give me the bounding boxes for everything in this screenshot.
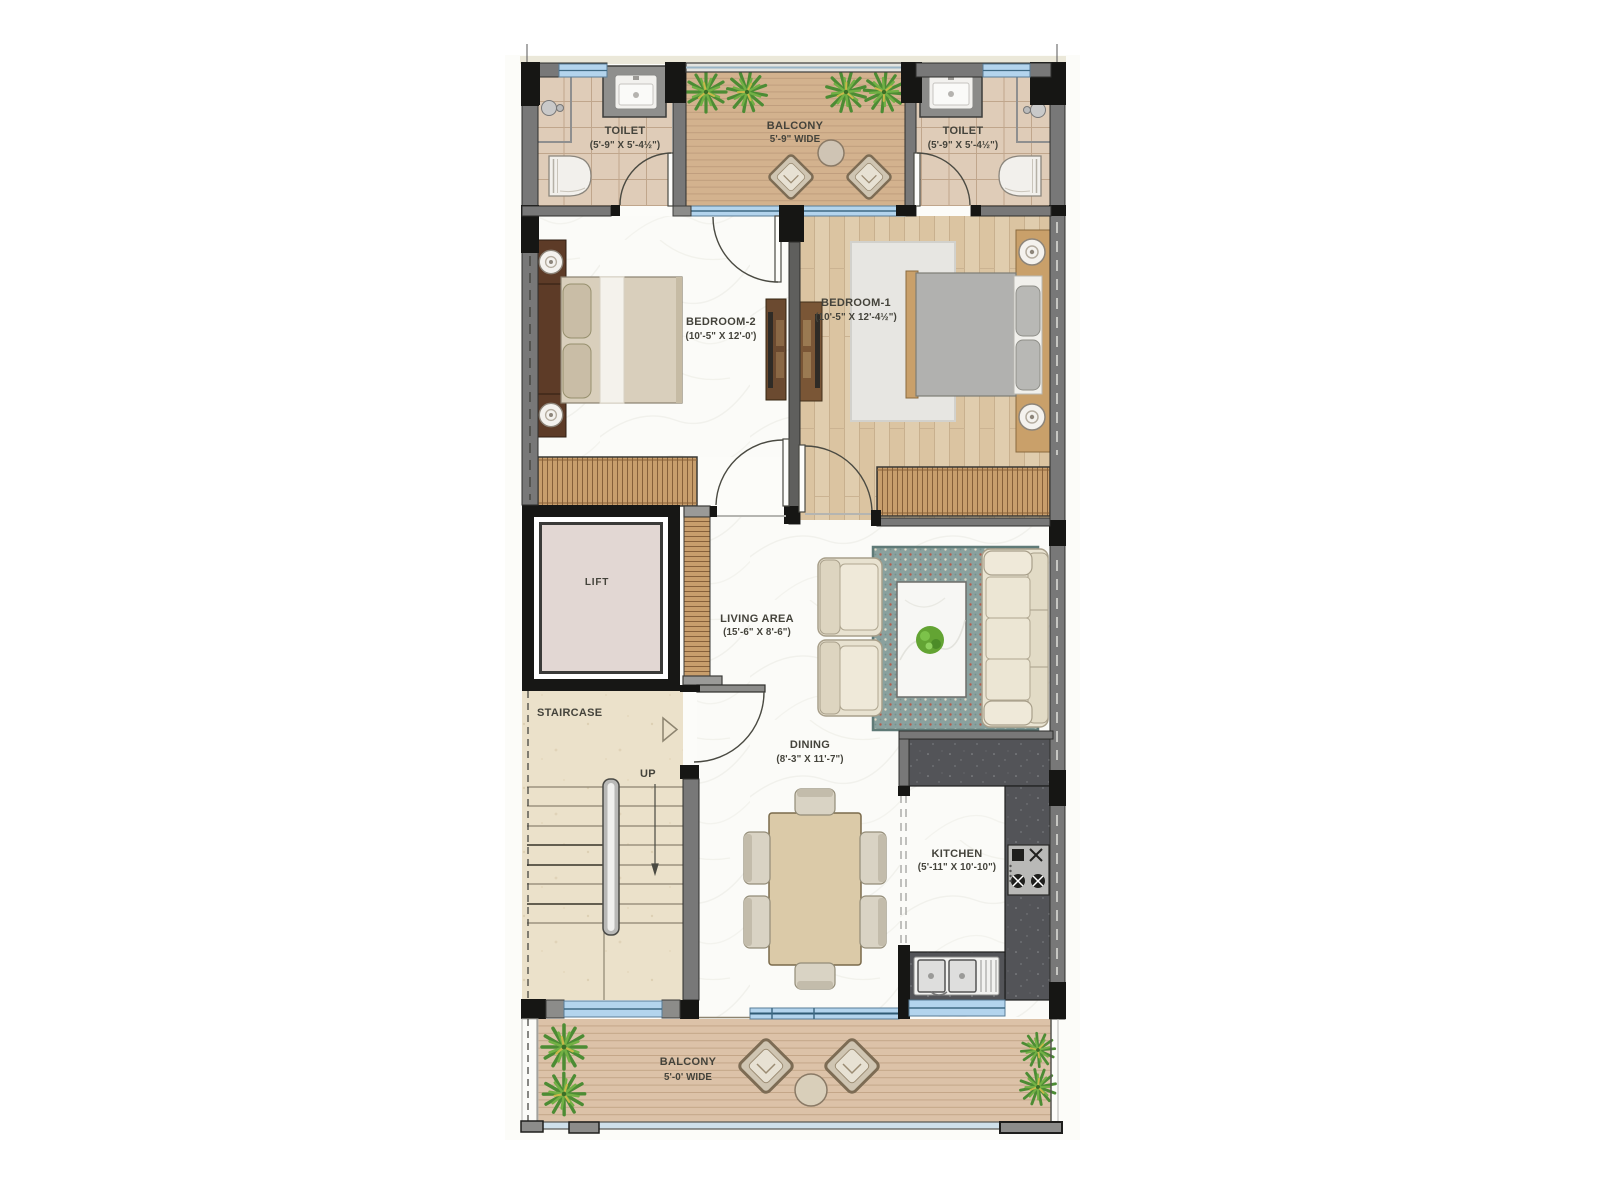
svg-text:BEDROOM-1: BEDROOM-1: [821, 297, 891, 309]
svg-text:(5'-9" X 5'-4½"): (5'-9" X 5'-4½"): [928, 140, 999, 151]
svg-text:(5'-9" X 5'-4½"): (5'-9" X 5'-4½"): [590, 140, 661, 151]
svg-text:KITCHEN: KITCHEN: [932, 848, 983, 860]
svg-text:(15'-6" X 8'-6"): (15'-6" X 8'-6"): [723, 627, 791, 638]
svg-text:BEDROOM-2: BEDROOM-2: [686, 316, 756, 328]
svg-text:5'-0' WIDE: 5'-0' WIDE: [664, 1072, 712, 1083]
svg-text:5'-9" WIDE: 5'-9" WIDE: [770, 134, 821, 145]
svg-text:TOILET: TOILET: [605, 125, 646, 137]
svg-text:LIFT: LIFT: [585, 577, 609, 588]
svg-text:BALCONY: BALCONY: [767, 120, 824, 132]
svg-text:(5'-11" X 10'-10"): (5'-11" X 10'-10"): [918, 862, 996, 873]
svg-text:(10'-5" X 12'-0'): (10'-5" X 12'-0'): [685, 331, 756, 342]
svg-text:BALCONY: BALCONY: [660, 1056, 717, 1068]
svg-text:TOILET: TOILET: [943, 125, 984, 137]
svg-text:LIVING AREA: LIVING AREA: [720, 613, 794, 625]
svg-text:DINING: DINING: [790, 739, 830, 751]
svg-text:STAIRCASE: STAIRCASE: [537, 707, 602, 719]
svg-text:(8'-3" X 11'-7"): (8'-3" X 11'-7"): [776, 754, 843, 765]
svg-text:UP: UP: [640, 768, 656, 780]
svg-text:(10'-5" X 12'-4½"): (10'-5" X 12'-4½"): [815, 312, 897, 323]
